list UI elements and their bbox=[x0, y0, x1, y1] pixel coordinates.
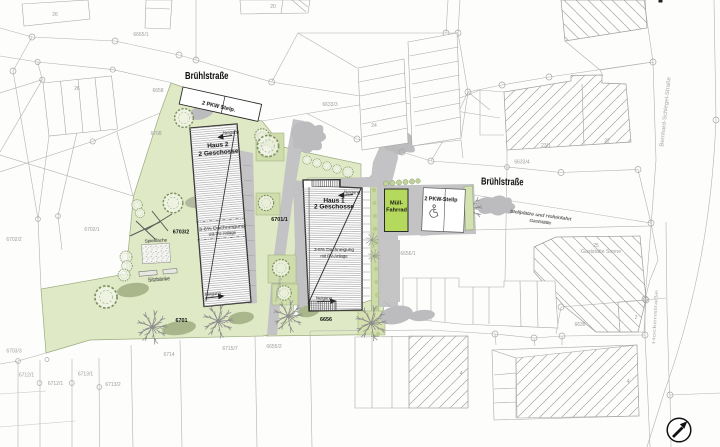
svg-text:6656/1: 6656/1 bbox=[400, 251, 416, 257]
svg-text:6713/2: 6713/2 bbox=[105, 382, 121, 388]
svg-text:6701: 6701 bbox=[176, 318, 188, 324]
svg-text:Müll-: Müll- bbox=[390, 201, 403, 207]
svg-text:mit PV-Anlage: mit PV-Anlage bbox=[320, 254, 348, 259]
svg-text:24: 24 bbox=[371, 123, 377, 129]
svg-text:26: 26 bbox=[52, 12, 58, 18]
svg-text:2: 2 bbox=[635, 315, 638, 321]
svg-text:6658: 6658 bbox=[152, 88, 163, 94]
svg-text:6635: 6635 bbox=[574, 322, 585, 328]
svg-text:6655/2: 6655/2 bbox=[266, 344, 282, 350]
svg-text:20: 20 bbox=[270, 4, 276, 10]
svg-text:6712/1: 6712/1 bbox=[48, 381, 64, 387]
svg-text:2 Geschosse: 2 Geschosse bbox=[314, 204, 354, 211]
svg-text:4: 4 bbox=[627, 379, 630, 385]
svg-text:6708: 6708 bbox=[150, 131, 161, 137]
svg-text:6702/1: 6702/1 bbox=[84, 227, 100, 233]
svg-text:22: 22 bbox=[604, 139, 610, 145]
svg-text:23/1: 23/1 bbox=[541, 143, 551, 149]
svg-text:Brühlstraße: Brühlstraße bbox=[185, 71, 229, 82]
svg-text:3-6% Dachneigung: 3-6% Dachneigung bbox=[314, 247, 355, 252]
svg-text:6633/3: 6633/3 bbox=[322, 102, 338, 108]
svg-text:Neigung: Neigung bbox=[344, 190, 361, 195]
svg-text:6713/1: 6713/1 bbox=[78, 372, 94, 378]
svg-text:4: 4 bbox=[460, 371, 463, 377]
svg-text:6703/3: 6703/3 bbox=[6, 349, 22, 355]
svg-text:Brühlstraße: Brühlstraße bbox=[481, 177, 524, 189]
svg-text:6656: 6656 bbox=[320, 317, 332, 323]
svg-text:6714: 6714 bbox=[163, 352, 174, 358]
svg-text:Gaststätte Sonne: Gaststätte Sonne bbox=[581, 249, 621, 255]
svg-text:Fahrrad: Fahrrad bbox=[386, 208, 407, 214]
svg-text:6712/1: 6712/1 bbox=[19, 373, 35, 379]
svg-text:6701/1: 6701/1 bbox=[271, 217, 288, 223]
svg-text:6702/2: 6702/2 bbox=[6, 237, 22, 243]
svg-text:6715/7: 6715/7 bbox=[222, 346, 238, 352]
svg-text:6665/1: 6665/1 bbox=[133, 32, 149, 38]
svg-text:6633/4: 6633/4 bbox=[514, 160, 530, 166]
svg-text:26: 26 bbox=[74, 86, 80, 92]
svg-text:6703/2: 6703/2 bbox=[173, 230, 190, 236]
